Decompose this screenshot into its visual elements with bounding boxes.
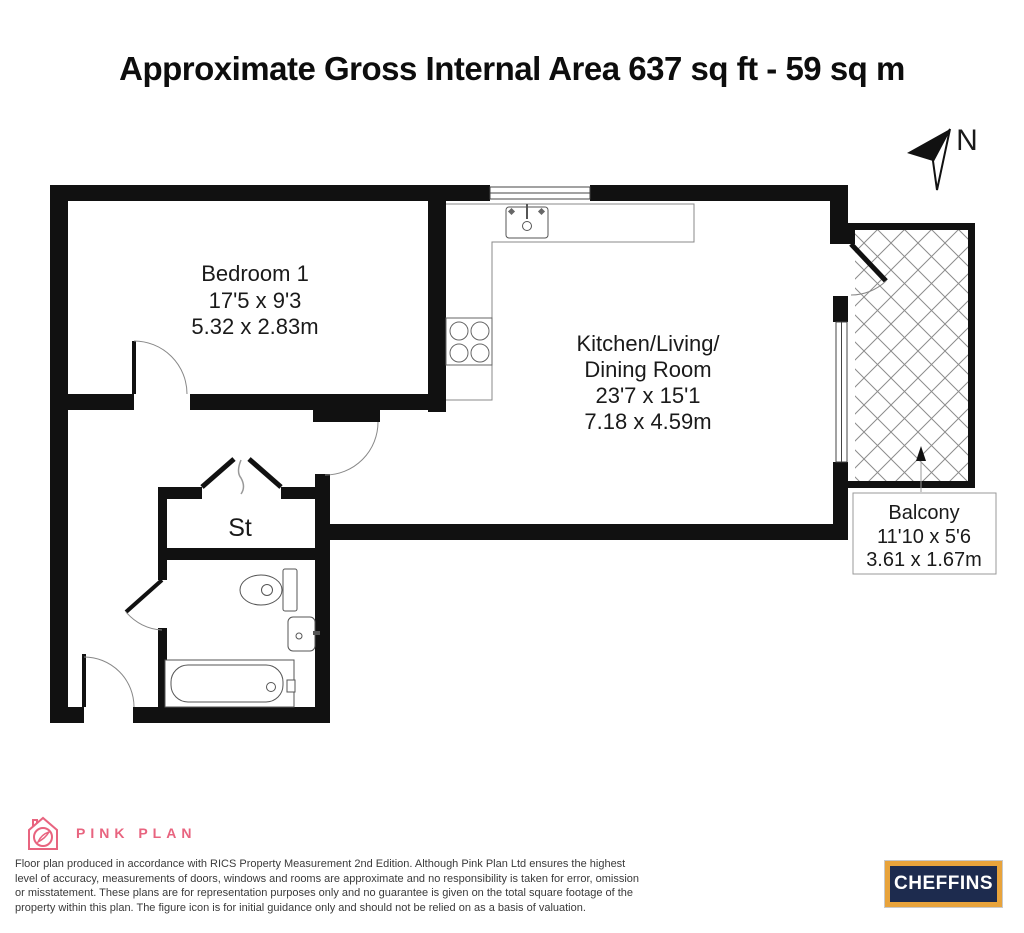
kitchen-name-line2: Dining Room — [584, 357, 711, 382]
kitchen-name-line1: Kitchen/Living/ — [576, 331, 720, 356]
stove-hob-icon — [446, 318, 492, 365]
floor-plan-page: { "title": "Approximate Gross Internal A… — [0, 0, 1024, 928]
disclaimer-text: Floor plan produced in accordance with R… — [15, 857, 640, 915]
living-room-door — [325, 422, 378, 475]
bathtub-icon — [165, 660, 295, 707]
balcony-dim-metric: 3.61 x 1.67m — [866, 549, 982, 571]
balcony-name: Balcony — [888, 502, 959, 524]
kitchen-sink-icon — [506, 204, 548, 238]
pink-plan-brand-text: PINK PLAN — [76, 825, 196, 841]
cheffins-logo-inner: CHEFFINS — [890, 866, 997, 902]
cheffins-logo: CHEFFINS — [885, 861, 1002, 907]
kitchen-dim-imperial: 23'7 x 15'1 — [595, 383, 700, 408]
bathroom-fixtures — [165, 569, 320, 707]
bedroom-dim-imperial: 17'5 x 9'3 — [209, 288, 302, 313]
page-title: Approximate Gross Internal Area 637 sq f… — [0, 50, 1024, 88]
storage-name: St — [228, 514, 252, 542]
storage-double-doors — [202, 459, 281, 494]
bathroom-door — [126, 580, 162, 630]
balcony-dim-imperial: 11'10 x 5'6 — [877, 526, 971, 548]
pink-plan-logo: PINK PLAN — [24, 813, 196, 853]
floor-plan: Balcony 11'10 x 5'6 3.61 x 1.67m Bedroom… — [0, 0, 1024, 928]
bedroom-dim-metric: 5.32 x 2.83m — [191, 314, 318, 339]
kitchen-dim-metric: 7.18 x 4.59m — [584, 409, 711, 434]
pink-plan-house-icon — [24, 813, 62, 853]
toilet-icon — [240, 569, 297, 611]
north-label: N — [956, 124, 978, 157]
north-arrow-icon: N — [907, 124, 978, 190]
entry-door — [84, 654, 134, 707]
bedroom-name: Bedroom 1 — [201, 261, 309, 286]
basin-icon — [288, 617, 320, 651]
bedroom-door — [134, 341, 187, 394]
cheffins-logo-text: CHEFFINS — [894, 873, 993, 895]
